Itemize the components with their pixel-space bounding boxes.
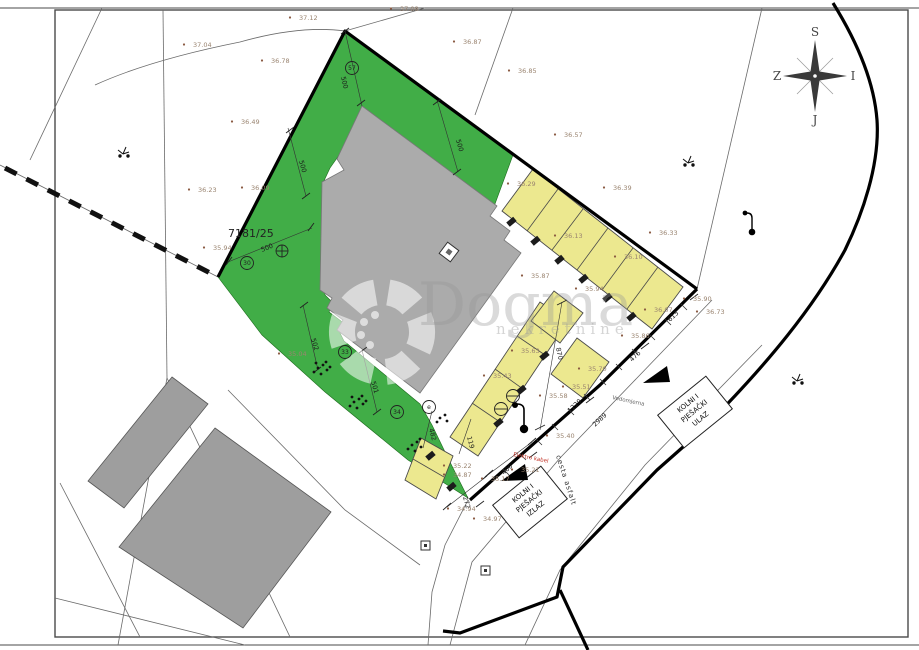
elevation-label: 35.94	[585, 285, 604, 293]
elevation-dot	[183, 43, 185, 45]
compass-rose: S I J Z	[773, 25, 856, 127]
elevation-label: 35.70	[588, 365, 607, 373]
elevation-dot	[649, 231, 651, 233]
street-lamp-icon	[512, 402, 528, 433]
elevation-label: 36.10	[624, 253, 643, 261]
elevation-label: 35.17	[491, 475, 510, 483]
elevation-label: 36.49	[241, 118, 260, 126]
elevation-label: 36.33	[659, 229, 678, 237]
elevation-dot	[261, 59, 263, 61]
dimension-label: 2989	[591, 411, 609, 428]
elevation-label: 35.43	[493, 372, 512, 380]
elevation-dot	[539, 394, 541, 396]
elevation-dot	[508, 69, 510, 71]
elevation-dot	[231, 120, 233, 122]
power-cable-label: Elektro kabel	[513, 452, 550, 465]
elevation-dot	[188, 188, 190, 190]
elevation-dot	[443, 473, 445, 475]
elevation-label: 36.39	[613, 184, 632, 192]
elevation-dot	[562, 385, 564, 387]
elevation-label: 35.94	[213, 244, 232, 252]
elevation-label: 36.09	[251, 184, 270, 192]
elevation-label: 35.63	[521, 347, 540, 355]
elevation-label: 35.58	[549, 392, 568, 400]
elevation-dot	[521, 274, 523, 276]
elevation-dot	[511, 349, 513, 351]
elevation-label: 37.04	[193, 41, 212, 49]
elevation-dot	[241, 186, 243, 188]
dimension-label: 476	[628, 349, 643, 363]
elevation-dot	[481, 477, 483, 479]
elevation-dot	[453, 40, 455, 42]
elevation-dot	[603, 186, 605, 188]
marker-label: 57	[348, 65, 356, 72]
elevation-label: 35.90	[693, 295, 712, 303]
marker-label: e	[427, 404, 431, 411]
elevation-label: 36.29	[517, 180, 536, 188]
elevation-label: 36.73	[706, 308, 725, 316]
elevation-label: 35.87	[531, 272, 550, 280]
elevation-label: 36.78	[271, 57, 290, 65]
elevation-label: 37.08	[400, 5, 419, 13]
elevation-label: 37.12	[299, 14, 318, 22]
elevation-dot	[683, 297, 685, 299]
dimension-label: 870	[554, 347, 564, 361]
elevation-dot	[554, 234, 556, 236]
elevation-label: 35.86	[631, 332, 650, 340]
elevation-label: 35.21	[521, 466, 540, 474]
elevation-dot	[644, 308, 646, 310]
elevation-dot	[483, 374, 485, 376]
compass-south: J	[811, 113, 818, 127]
elevation-dot	[278, 352, 280, 354]
elevation-dot	[614, 255, 616, 257]
compass-west: Z	[773, 69, 781, 83]
elevation-label: 36.23	[198, 186, 217, 194]
elevation-label: 36.57	[564, 131, 583, 139]
utility-square-symbols	[421, 541, 490, 575]
entry-arrow	[643, 366, 670, 383]
elevation-dot	[575, 287, 577, 289]
marker-label: 30	[243, 260, 251, 267]
site-plan: Dogma nekretnine 7181/25 cesta asfalt Vo…	[0, 0, 919, 650]
elevation-dot	[443, 464, 445, 466]
elevation-label: 34.87	[453, 471, 472, 479]
elevation-dot	[578, 367, 580, 369]
elevation-label: 35.04	[288, 350, 307, 358]
elevation-label: 35.51	[572, 383, 591, 391]
elevation-dot	[289, 16, 291, 18]
elevation-dot	[390, 7, 392, 9]
elevation-label: 36.85	[518, 67, 537, 75]
compass-north: S	[811, 25, 819, 39]
elevation-dot	[447, 507, 449, 509]
elevation-dot	[203, 246, 205, 248]
utility-label: Vodomjerna	[612, 395, 645, 408]
elevation-label: 34.97	[483, 515, 502, 523]
elevation-dot	[473, 517, 475, 519]
elevation-label: 35.22	[453, 462, 472, 470]
elevation-label: 36.87	[463, 38, 482, 46]
elevation-dot	[696, 310, 698, 312]
watermark-subtitle: nekretnine	[496, 320, 629, 338]
elevation-label: 35.40	[556, 432, 575, 440]
elevation-dot	[621, 334, 623, 336]
elevation-label: 36.13	[564, 232, 583, 240]
marker-label: 34	[393, 409, 401, 416]
elevation-dot	[546, 434, 548, 436]
elevation-dot	[507, 182, 509, 184]
compass-east: I	[851, 69, 856, 83]
elevation-dot	[554, 133, 556, 135]
street-lamp-icon-2	[743, 211, 756, 236]
parcel-number: 7181/25	[228, 227, 274, 240]
marker-label: 33	[341, 349, 349, 356]
